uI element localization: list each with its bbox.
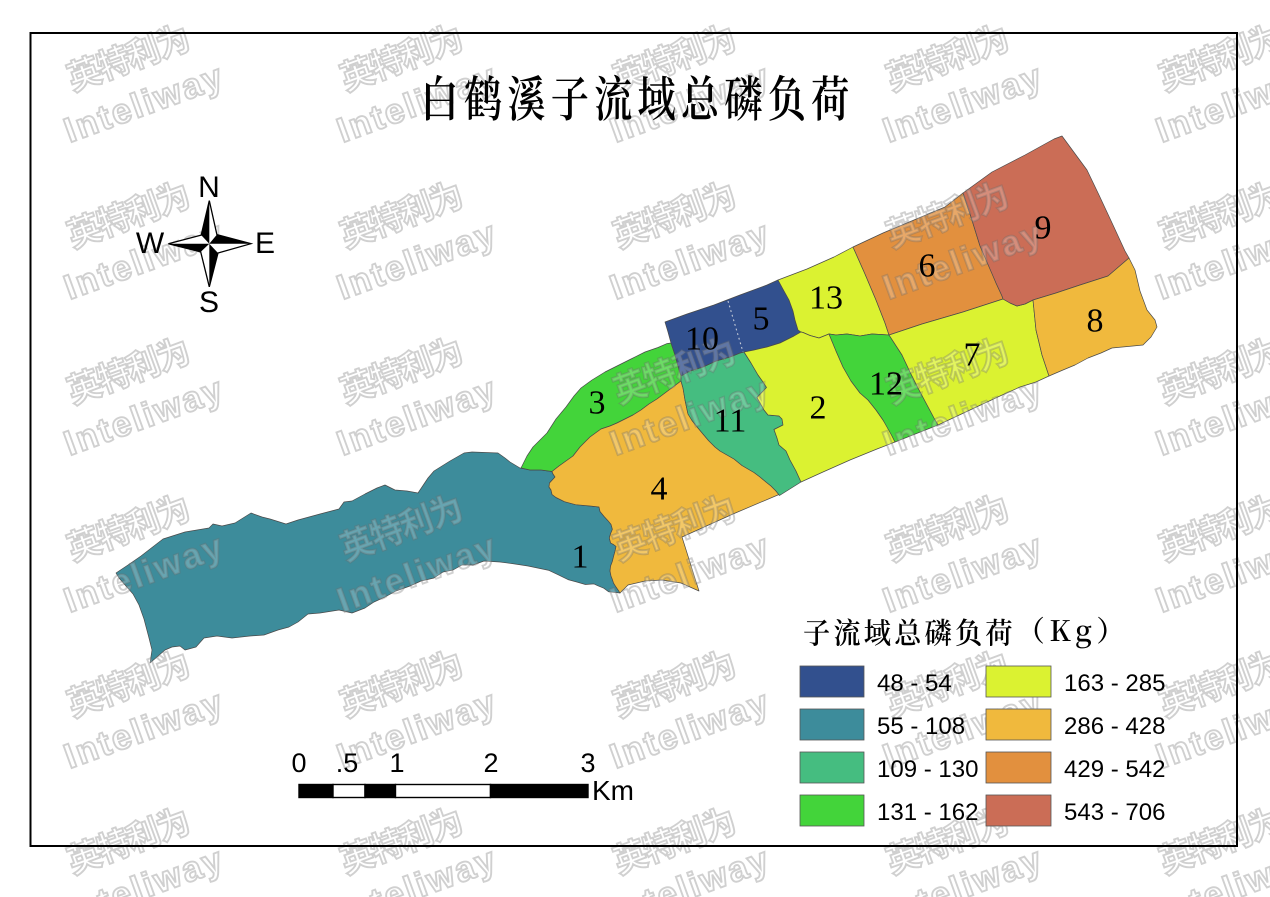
svg-text:7: 7: [964, 337, 981, 374]
svg-text:163 - 285: 163 - 285: [1064, 670, 1165, 697]
svg-text:13: 13: [809, 280, 843, 317]
svg-text:1: 1: [572, 539, 589, 576]
svg-text:286 - 428: 286 - 428: [1064, 713, 1165, 740]
svg-text:Km: Km: [592, 775, 634, 806]
svg-text:3: 3: [589, 385, 606, 422]
svg-text:8: 8: [1087, 303, 1104, 340]
svg-text:S: S: [199, 286, 219, 319]
svg-text:N: N: [198, 171, 220, 204]
svg-text:131 - 162: 131 - 162: [877, 799, 978, 826]
svg-text:2: 2: [810, 390, 827, 427]
svg-text:55 - 108: 55 - 108: [877, 713, 965, 740]
svg-text:11: 11: [714, 403, 747, 440]
svg-text:W: W: [136, 227, 165, 260]
svg-text:E: E: [255, 227, 275, 260]
svg-text:12: 12: [869, 366, 903, 403]
svg-text:1: 1: [389, 748, 404, 778]
svg-text:543 - 706: 543 - 706: [1064, 799, 1165, 826]
svg-text:10: 10: [685, 321, 719, 358]
svg-text:.5: .5: [336, 748, 359, 778]
svg-text:429 - 542: 429 - 542: [1064, 756, 1165, 783]
svg-text:5: 5: [753, 301, 770, 338]
svg-text:6: 6: [919, 248, 936, 285]
svg-text:2: 2: [483, 748, 498, 778]
svg-text:4: 4: [651, 471, 668, 508]
svg-text:48 - 54: 48 - 54: [877, 670, 952, 697]
svg-text:0: 0: [291, 748, 306, 778]
svg-text:9: 9: [1035, 210, 1052, 247]
svg-text:109 - 130: 109 - 130: [877, 756, 978, 783]
svg-text:3: 3: [580, 748, 595, 778]
